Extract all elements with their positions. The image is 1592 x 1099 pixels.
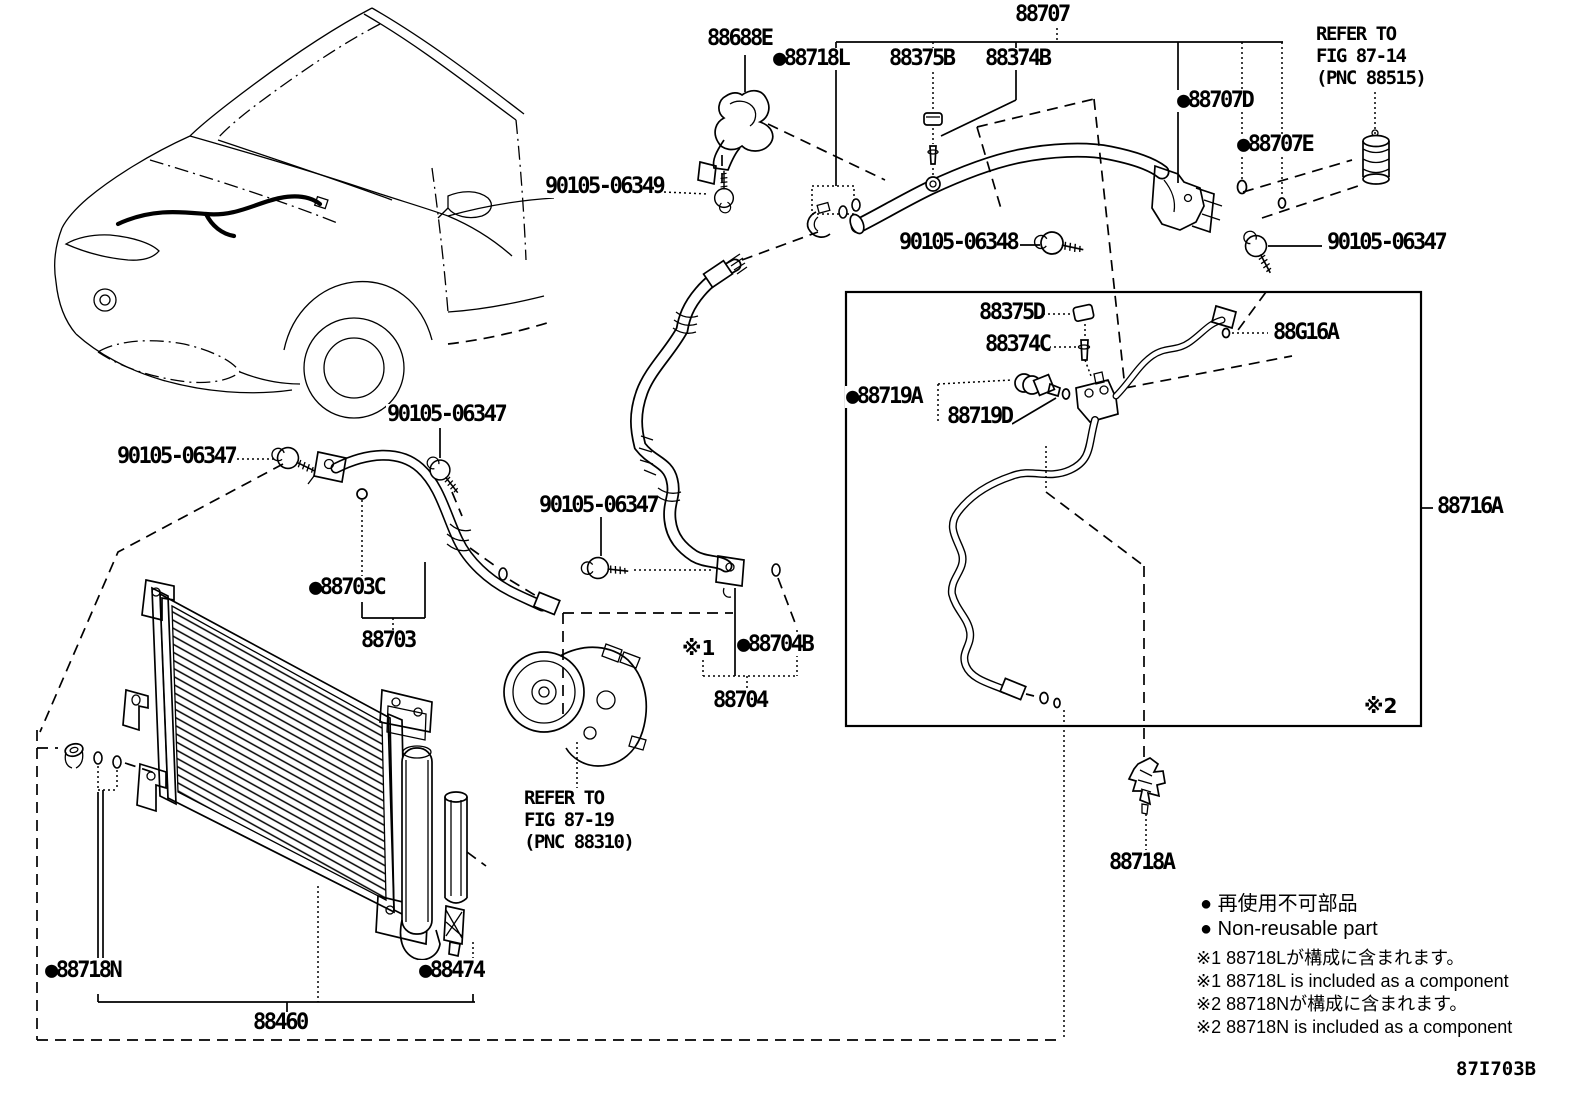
part-label-88719A[interactable]: ●88719A [845, 386, 922, 408]
ref-fig-87-14: REFER TOFIG 87-14(PNC 88515) [1316, 24, 1425, 90]
part-label-88718L[interactable]: ●88718L [772, 48, 849, 70]
oring-icon [852, 199, 860, 211]
legend-note2-jp: ※2 88718Nが構成に含まれます。 [1196, 995, 1467, 1015]
part-label-90105-06349[interactable]: 90105-06349 [544, 176, 664, 198]
valve-cap-88375D-icon [1073, 304, 1094, 322]
part-label-90105-06348[interactable]: 90105-06348 [898, 232, 1018, 254]
part-label-88688E[interactable]: 88688E [706, 28, 772, 50]
legend-note1-jp: ※1 88718Lが構成に含まれます。 [1196, 949, 1464, 969]
legend-nonreusable-jp: ● 再使用不可部品 [1200, 893, 1358, 915]
part-label-88707E[interactable]: ●88707E [1236, 134, 1313, 156]
footnote-mark-2: ※2 [1364, 696, 1397, 716]
part-label-90105-06347[interactable]: 90105-06347 [538, 495, 658, 517]
valve-core-88374B-icon [928, 146, 938, 164]
legend-note1-en: ※1 88718L is included as a component [1196, 972, 1509, 992]
drawing-code: 87I703B [1456, 1058, 1536, 1080]
part-label-90105-06347[interactable]: 90105-06347 [386, 404, 506, 426]
bolt-90105-06347-icon [580, 556, 629, 582]
engine-bay-ac-harness [118, 196, 328, 236]
condenser-bracket-icon [123, 690, 148, 730]
discharge-pipe-88707 [808, 113, 1286, 237]
part-label-88375B[interactable]: 88375B [888, 48, 954, 70]
clip-88718N-icon [64, 742, 84, 768]
oring-88704B-icon [772, 564, 780, 576]
oring-88G16A-icon [1223, 329, 1230, 338]
valve-cap-88375B-icon [924, 113, 942, 125]
bolt-90105-06349-icon [715, 171, 734, 213]
part-label-88375D[interactable]: 88375D [978, 302, 1044, 324]
bolt-90105-06347-icon [1239, 226, 1279, 277]
part-label-88G16A[interactable]: 88G16A [1272, 322, 1338, 344]
part-label-88374B[interactable]: 88374B [984, 48, 1050, 70]
footnote-mark-1: ※1 [682, 638, 715, 658]
parts-diagram-page: 88707 88688E ●88718L 88375B 88374B REFER… [0, 0, 1592, 1099]
part-label-90105-06347[interactable]: 90105-06347 [116, 446, 236, 468]
part-label-88703[interactable]: 88703 [360, 630, 416, 652]
oring-88707E-icon [1279, 198, 1286, 208]
part-label-88716A[interactable]: 88716A [1436, 496, 1502, 518]
legend-note2-en: ※2 88718N is included as a component [1196, 1018, 1512, 1038]
part-label-88374C[interactable]: 88374C [984, 334, 1050, 356]
part-label-88704[interactable]: 88704 [712, 690, 768, 712]
part-label-88719D[interactable]: 88719D [946, 406, 1012, 428]
desiccant-bag-88474-icon [444, 792, 486, 956]
pipe-joint-block-icon [1076, 372, 1118, 422]
clamp-88718L-icon [808, 203, 830, 238]
bracket-88688E-icon [698, 55, 885, 184]
oring-icon [839, 206, 847, 218]
ref-fig-87-19: REFER TOFIG 87-19(PNC 88310) [524, 788, 633, 854]
receiver-drier-icon [401, 746, 441, 960]
bolt-90105-06347-icon [269, 441, 320, 480]
part-label-88703C[interactable]: ●88703C [308, 577, 385, 599]
clip-88718A-icon [1129, 566, 1165, 850]
part-label-88707[interactable]: 88707 [1014, 4, 1070, 26]
valve-core-88374C-icon [1079, 340, 1090, 360]
pressure-sensor-88719-icon [1015, 374, 1070, 399]
part-label-88460[interactable]: 88460 [252, 1012, 308, 1034]
part-label-88718N[interactable]: ●88718N [44, 960, 121, 982]
part-label-90105-06347[interactable]: 90105-06347 [1326, 232, 1446, 254]
part-label-88474[interactable]: ●88474 [418, 960, 484, 982]
part-label-88704B[interactable]: ●88704B [736, 634, 813, 656]
part-label-88707D[interactable]: ●88707D [1176, 90, 1253, 112]
bolt-90105-06348-icon [1033, 229, 1086, 261]
part-label-88718A[interactable]: 88718A [1108, 852, 1174, 874]
suction-hose-88704 [637, 232, 819, 597]
legend-nonreusable-en: ● Non-reusable part [1200, 918, 1378, 940]
car-illustration [55, 8, 554, 418]
